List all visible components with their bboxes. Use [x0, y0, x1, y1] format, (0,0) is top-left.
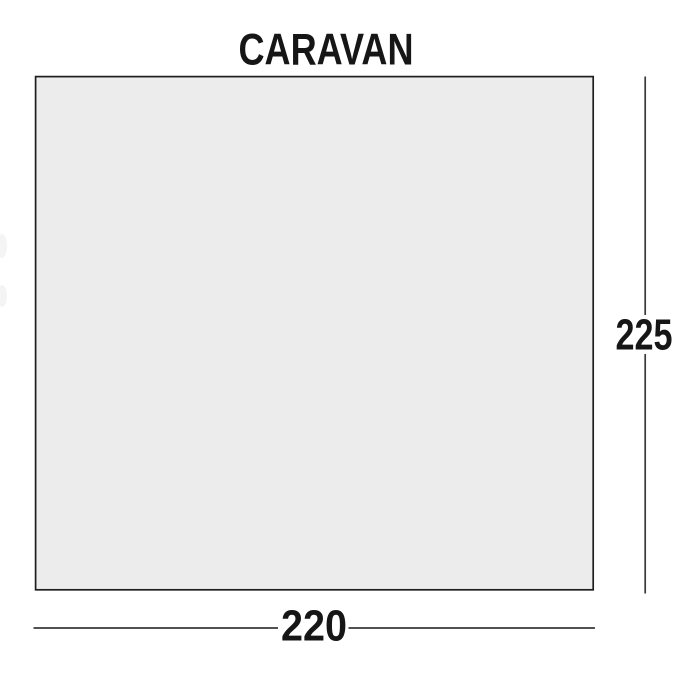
svg-text:225: 225: [616, 311, 673, 360]
svg-text:CARAVAN: CARAVAN: [239, 26, 414, 75]
svg-text:220: 220: [281, 602, 347, 651]
